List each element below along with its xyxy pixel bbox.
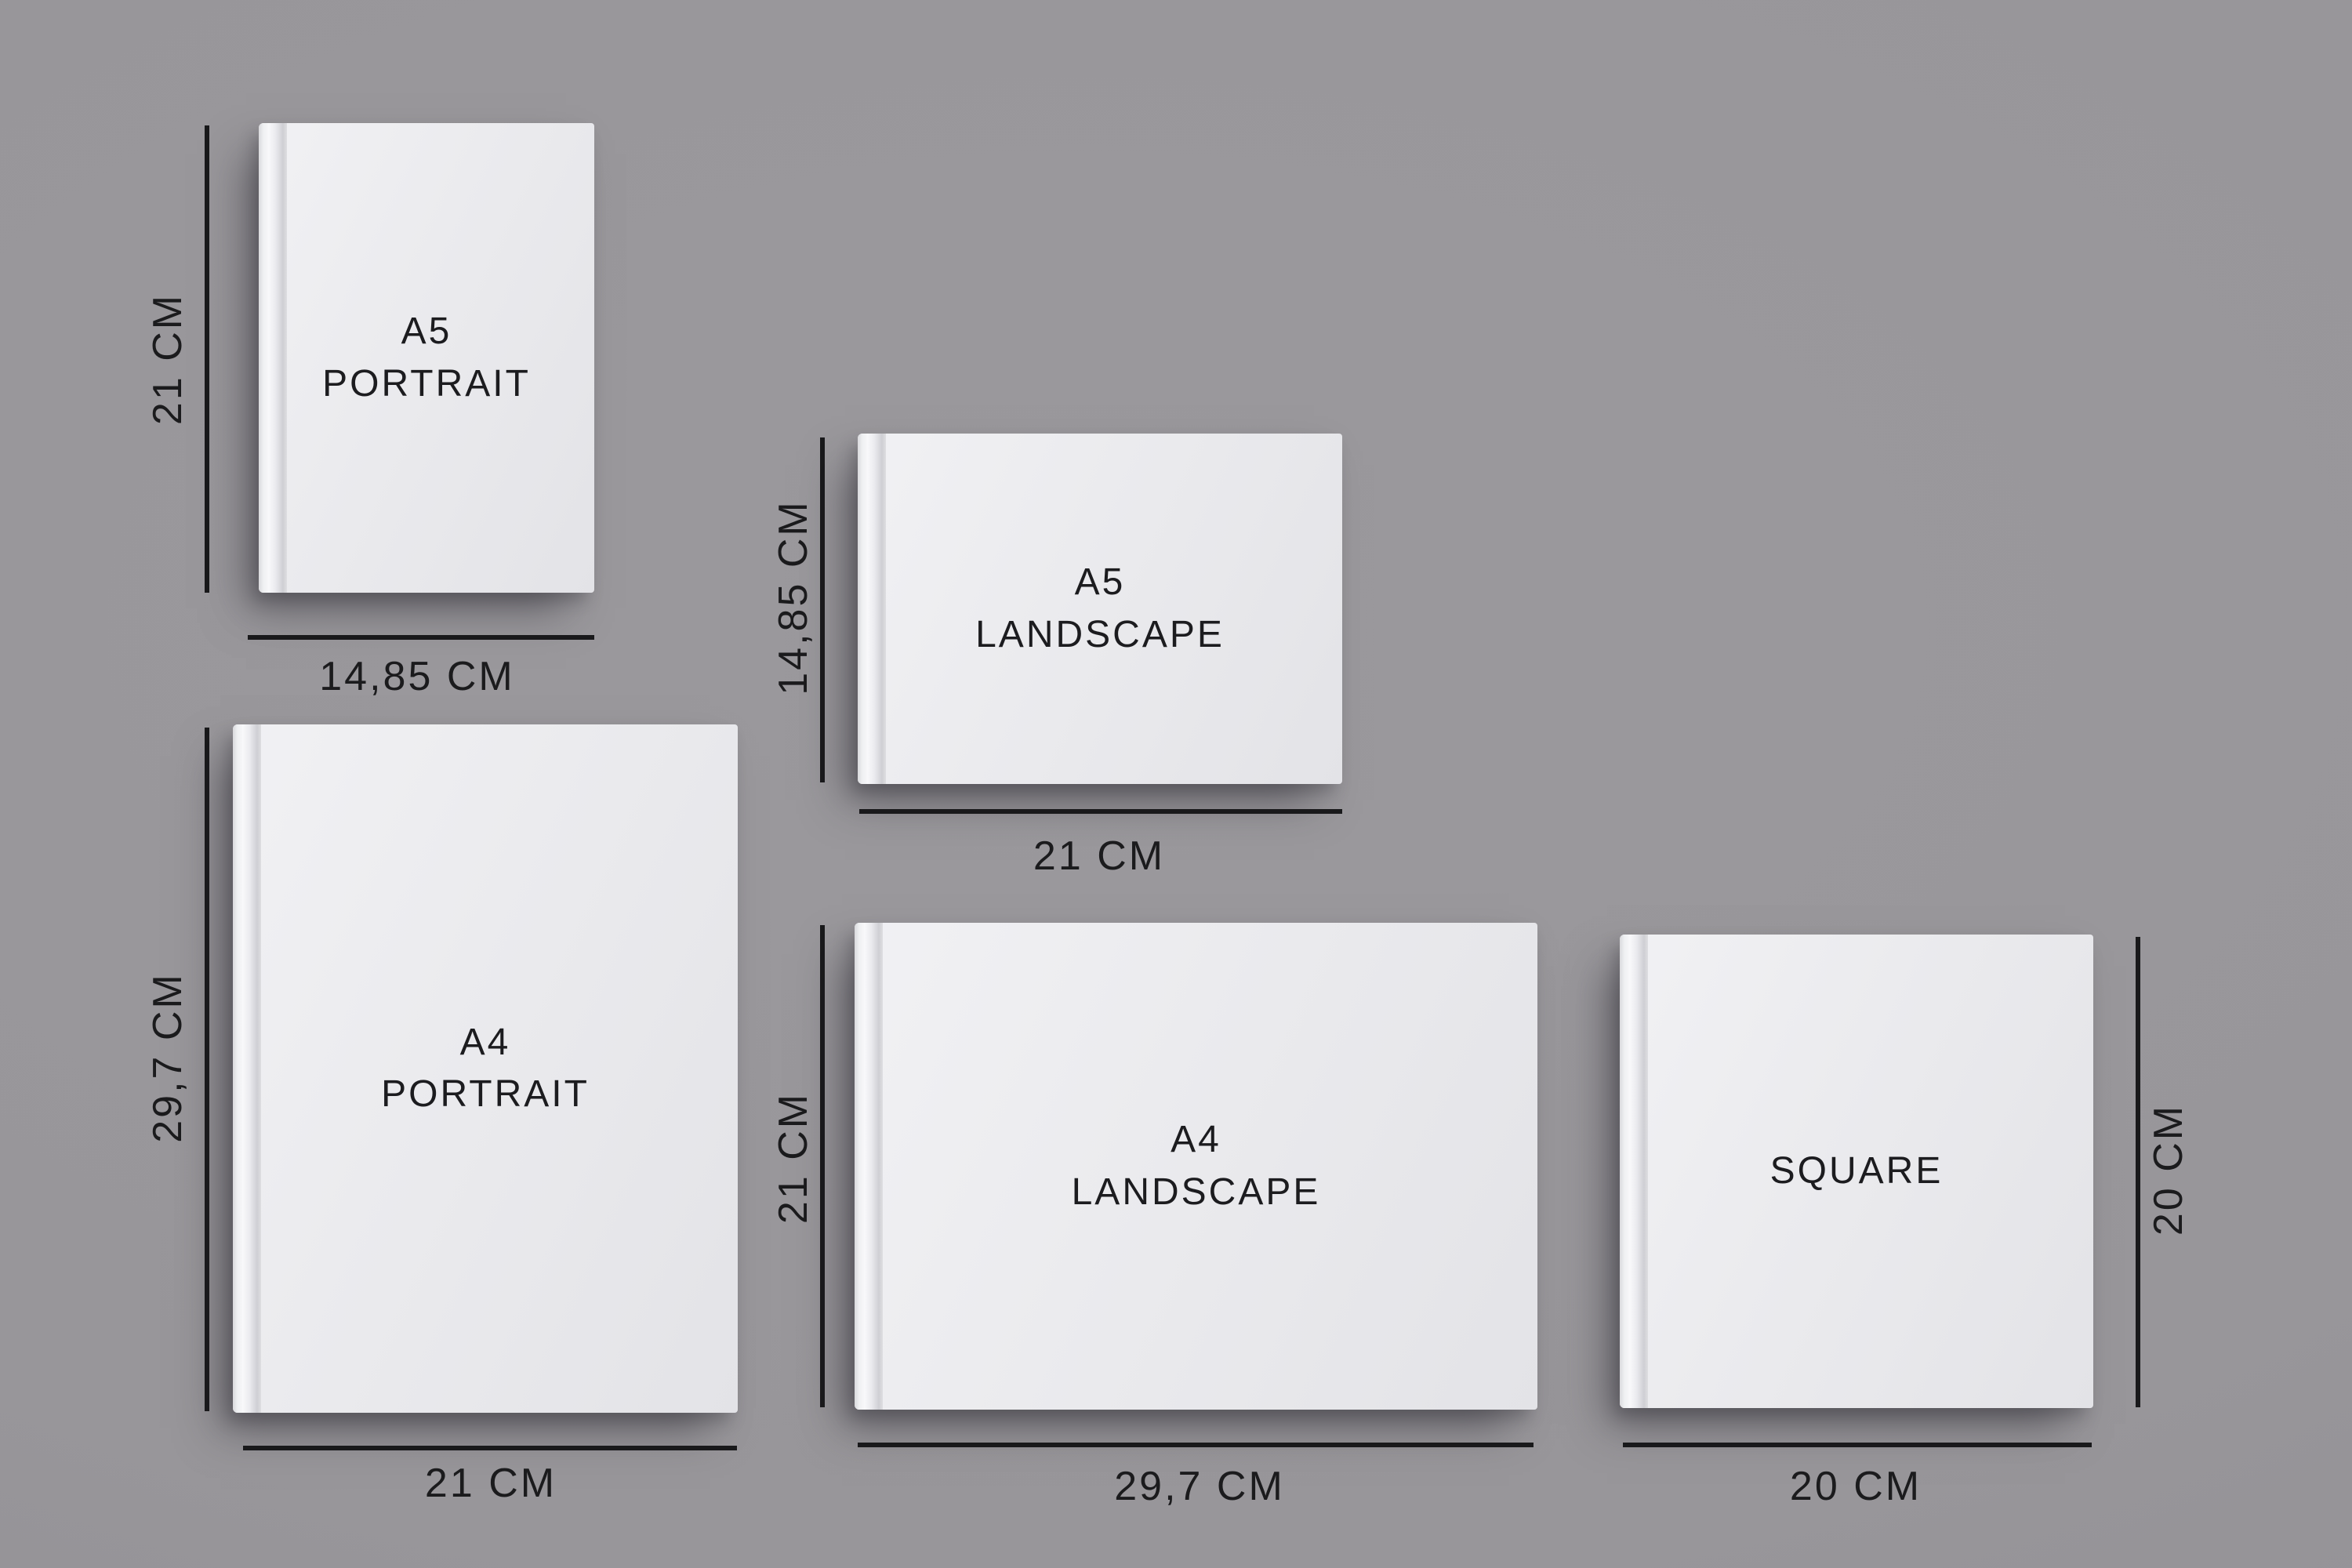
book-title: A4 PORTRAIT	[381, 1017, 590, 1120]
book-title: A4 LANDSCAPE	[1072, 1114, 1321, 1218]
height-dimension-line	[205, 728, 209, 1411]
width-dimension-label: 21 CM	[373, 1458, 608, 1508]
width-dimension-label: 20 CM	[1738, 1461, 1973, 1512]
width-dimension-label: 14,85 CM	[299, 652, 535, 702]
height-dimension-label: 21 CM	[762, 1040, 825, 1276]
height-dimension-line	[205, 125, 209, 593]
book-cover-square: SQUARE	[1620, 935, 2093, 1408]
width-dimension-line	[858, 1443, 1534, 1447]
height-dimension-label: 29,7 CM	[136, 940, 199, 1175]
width-dimension-label: 21 CM	[982, 831, 1217, 881]
book-spine	[1620, 935, 1648, 1408]
book-cover-a4-portrait: A4 PORTRAIT	[233, 724, 738, 1413]
size-comparison-diagram: 21 CM A5 PORTRAIT 14,85 CM 14,85 CM A5 L…	[0, 0, 2352, 1568]
book-spine	[858, 434, 886, 784]
width-dimension-line	[248, 635, 594, 640]
book-cover-a4-landscape: A4 LANDSCAPE	[855, 923, 1537, 1410]
book-title: A5 PORTRAIT	[322, 306, 531, 409]
width-dimension-line	[1623, 1443, 2092, 1447]
width-dimension-label: 29,7 CM	[1082, 1461, 1317, 1512]
book-spine	[855, 923, 883, 1410]
width-dimension-line	[243, 1446, 737, 1450]
book-spine	[233, 724, 261, 1413]
book-title: A5 LANDSCAPE	[975, 557, 1225, 660]
width-dimension-line	[859, 809, 1342, 814]
height-dimension-label: 21 CM	[136, 241, 199, 477]
book-title: SQUARE	[1770, 1145, 1944, 1197]
height-dimension-label: 20 CM	[2137, 1052, 2200, 1287]
book-spine	[259, 123, 287, 593]
height-dimension-label: 14,85 CM	[762, 480, 825, 715]
book-cover-a5-portrait: A5 PORTRAIT	[259, 123, 594, 593]
book-cover-a5-landscape: A5 LANDSCAPE	[858, 434, 1342, 784]
